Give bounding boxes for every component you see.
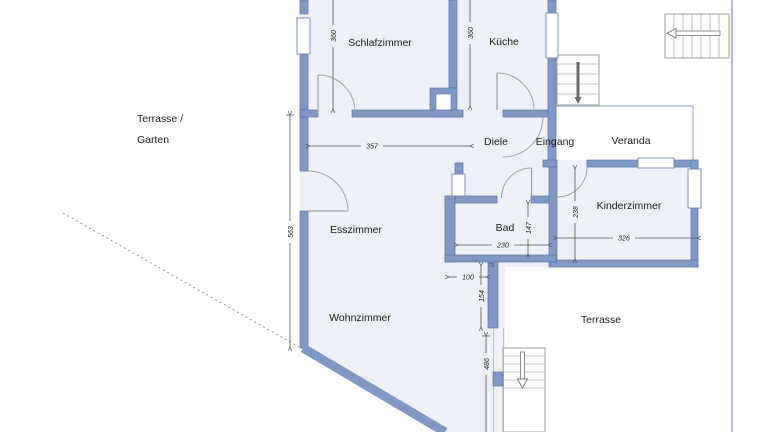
dim-pier-width: 73	[488, 263, 494, 269]
room-label-kinderzimmer: Kinderzimmer	[597, 200, 662, 212]
staircase-kitchen	[557, 55, 599, 105]
window	[546, 13, 558, 58]
staircase-terrace	[503, 348, 545, 432]
dim-kinderzimmer-height: 238	[573, 206, 580, 219]
room-label-kueche: Küche	[489, 36, 519, 48]
dim-terrace-length: 486	[484, 358, 491, 370]
room-label-bad: Bad	[496, 222, 515, 234]
staircase-top-right	[665, 14, 729, 58]
dim-pier-height: 154	[479, 290, 486, 302]
apartment-floor	[300, 0, 698, 432]
dim-corridor-width: 357	[366, 144, 379, 151]
room-label-schlafzimmer: Schlafzimmer	[348, 37, 412, 49]
window	[688, 169, 701, 208]
dim-kinderzimmer-width: 326	[618, 236, 630, 243]
dim-schlafzimmer-height: 360	[331, 30, 338, 42]
outdoor-label-terrasse-garten-line1: Terrasse /	[137, 113, 183, 125]
dim-bad-height: 147	[526, 221, 533, 234]
room-label-esszimmer: Esszimmer	[330, 224, 382, 236]
dim-pier-offset: 100	[462, 275, 474, 282]
window	[638, 158, 674, 168]
property-dashed-line	[63, 213, 299, 347]
window	[452, 174, 465, 196]
room-label-veranda: Veranda	[611, 135, 650, 147]
window	[297, 18, 310, 54]
dim-bad-width: 230	[496, 243, 509, 250]
dim-kueche-height: 360	[468, 27, 475, 39]
room-label-diele: Diele	[484, 136, 508, 148]
outdoor-label-terrasse-garten-line2: Garten	[137, 134, 169, 146]
room-label-eingang: Eingang	[536, 136, 575, 148]
floor-plan: 360 360 357 563 238 326 230 147 100 154	[0, 0, 768, 432]
room-label-wohnzimmer: Wohnzimmer	[329, 312, 391, 324]
outdoor-label-terrasse: Terrasse	[581, 314, 621, 326]
dim-esszimmer-height: 563	[288, 226, 295, 238]
veranda-outline	[556, 106, 693, 160]
